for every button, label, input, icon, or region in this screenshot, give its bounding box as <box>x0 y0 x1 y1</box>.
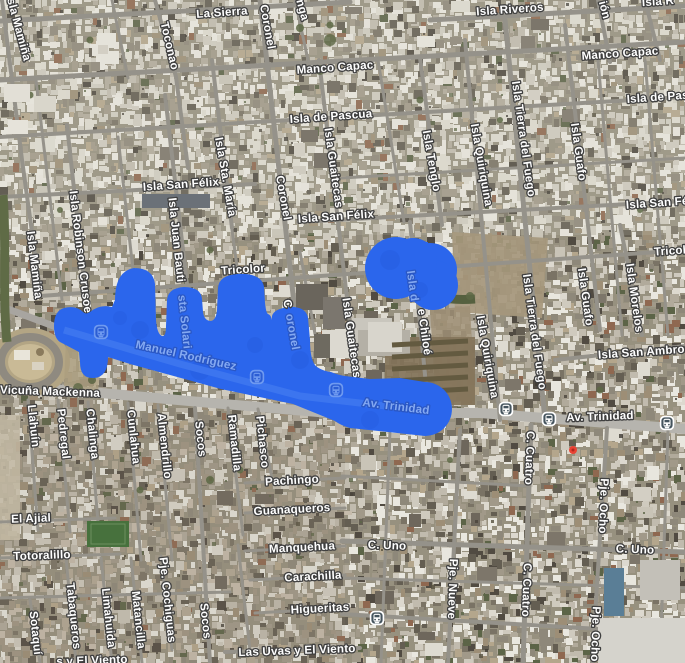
svg-text:C. Uno: C. Uno <box>616 542 655 556</box>
svg-text:El Ajial: El Ajial <box>11 511 51 525</box>
svg-text:Av. Trinidad: Av. Trinidad <box>566 409 634 424</box>
svg-text:Totoralillo: Totoralillo <box>13 548 71 563</box>
svg-text:s y El Viento: s y El Viento <box>56 653 128 663</box>
svg-text:C. Cuatro: C. Cuatro <box>519 563 534 617</box>
svg-text:Tricolor: Tricolor <box>654 243 685 259</box>
svg-text:Pje. Nueve: Pje. Nueve <box>445 558 460 619</box>
svg-text:C. Cuatro: C. Cuatro <box>522 431 537 485</box>
svg-text:Pje. Ocho: Pje. Ocho <box>596 478 611 534</box>
svg-text:Pje. Ocho: Pje. Ocho <box>588 606 603 662</box>
svg-text:C. Uno: C. Uno <box>368 538 407 552</box>
